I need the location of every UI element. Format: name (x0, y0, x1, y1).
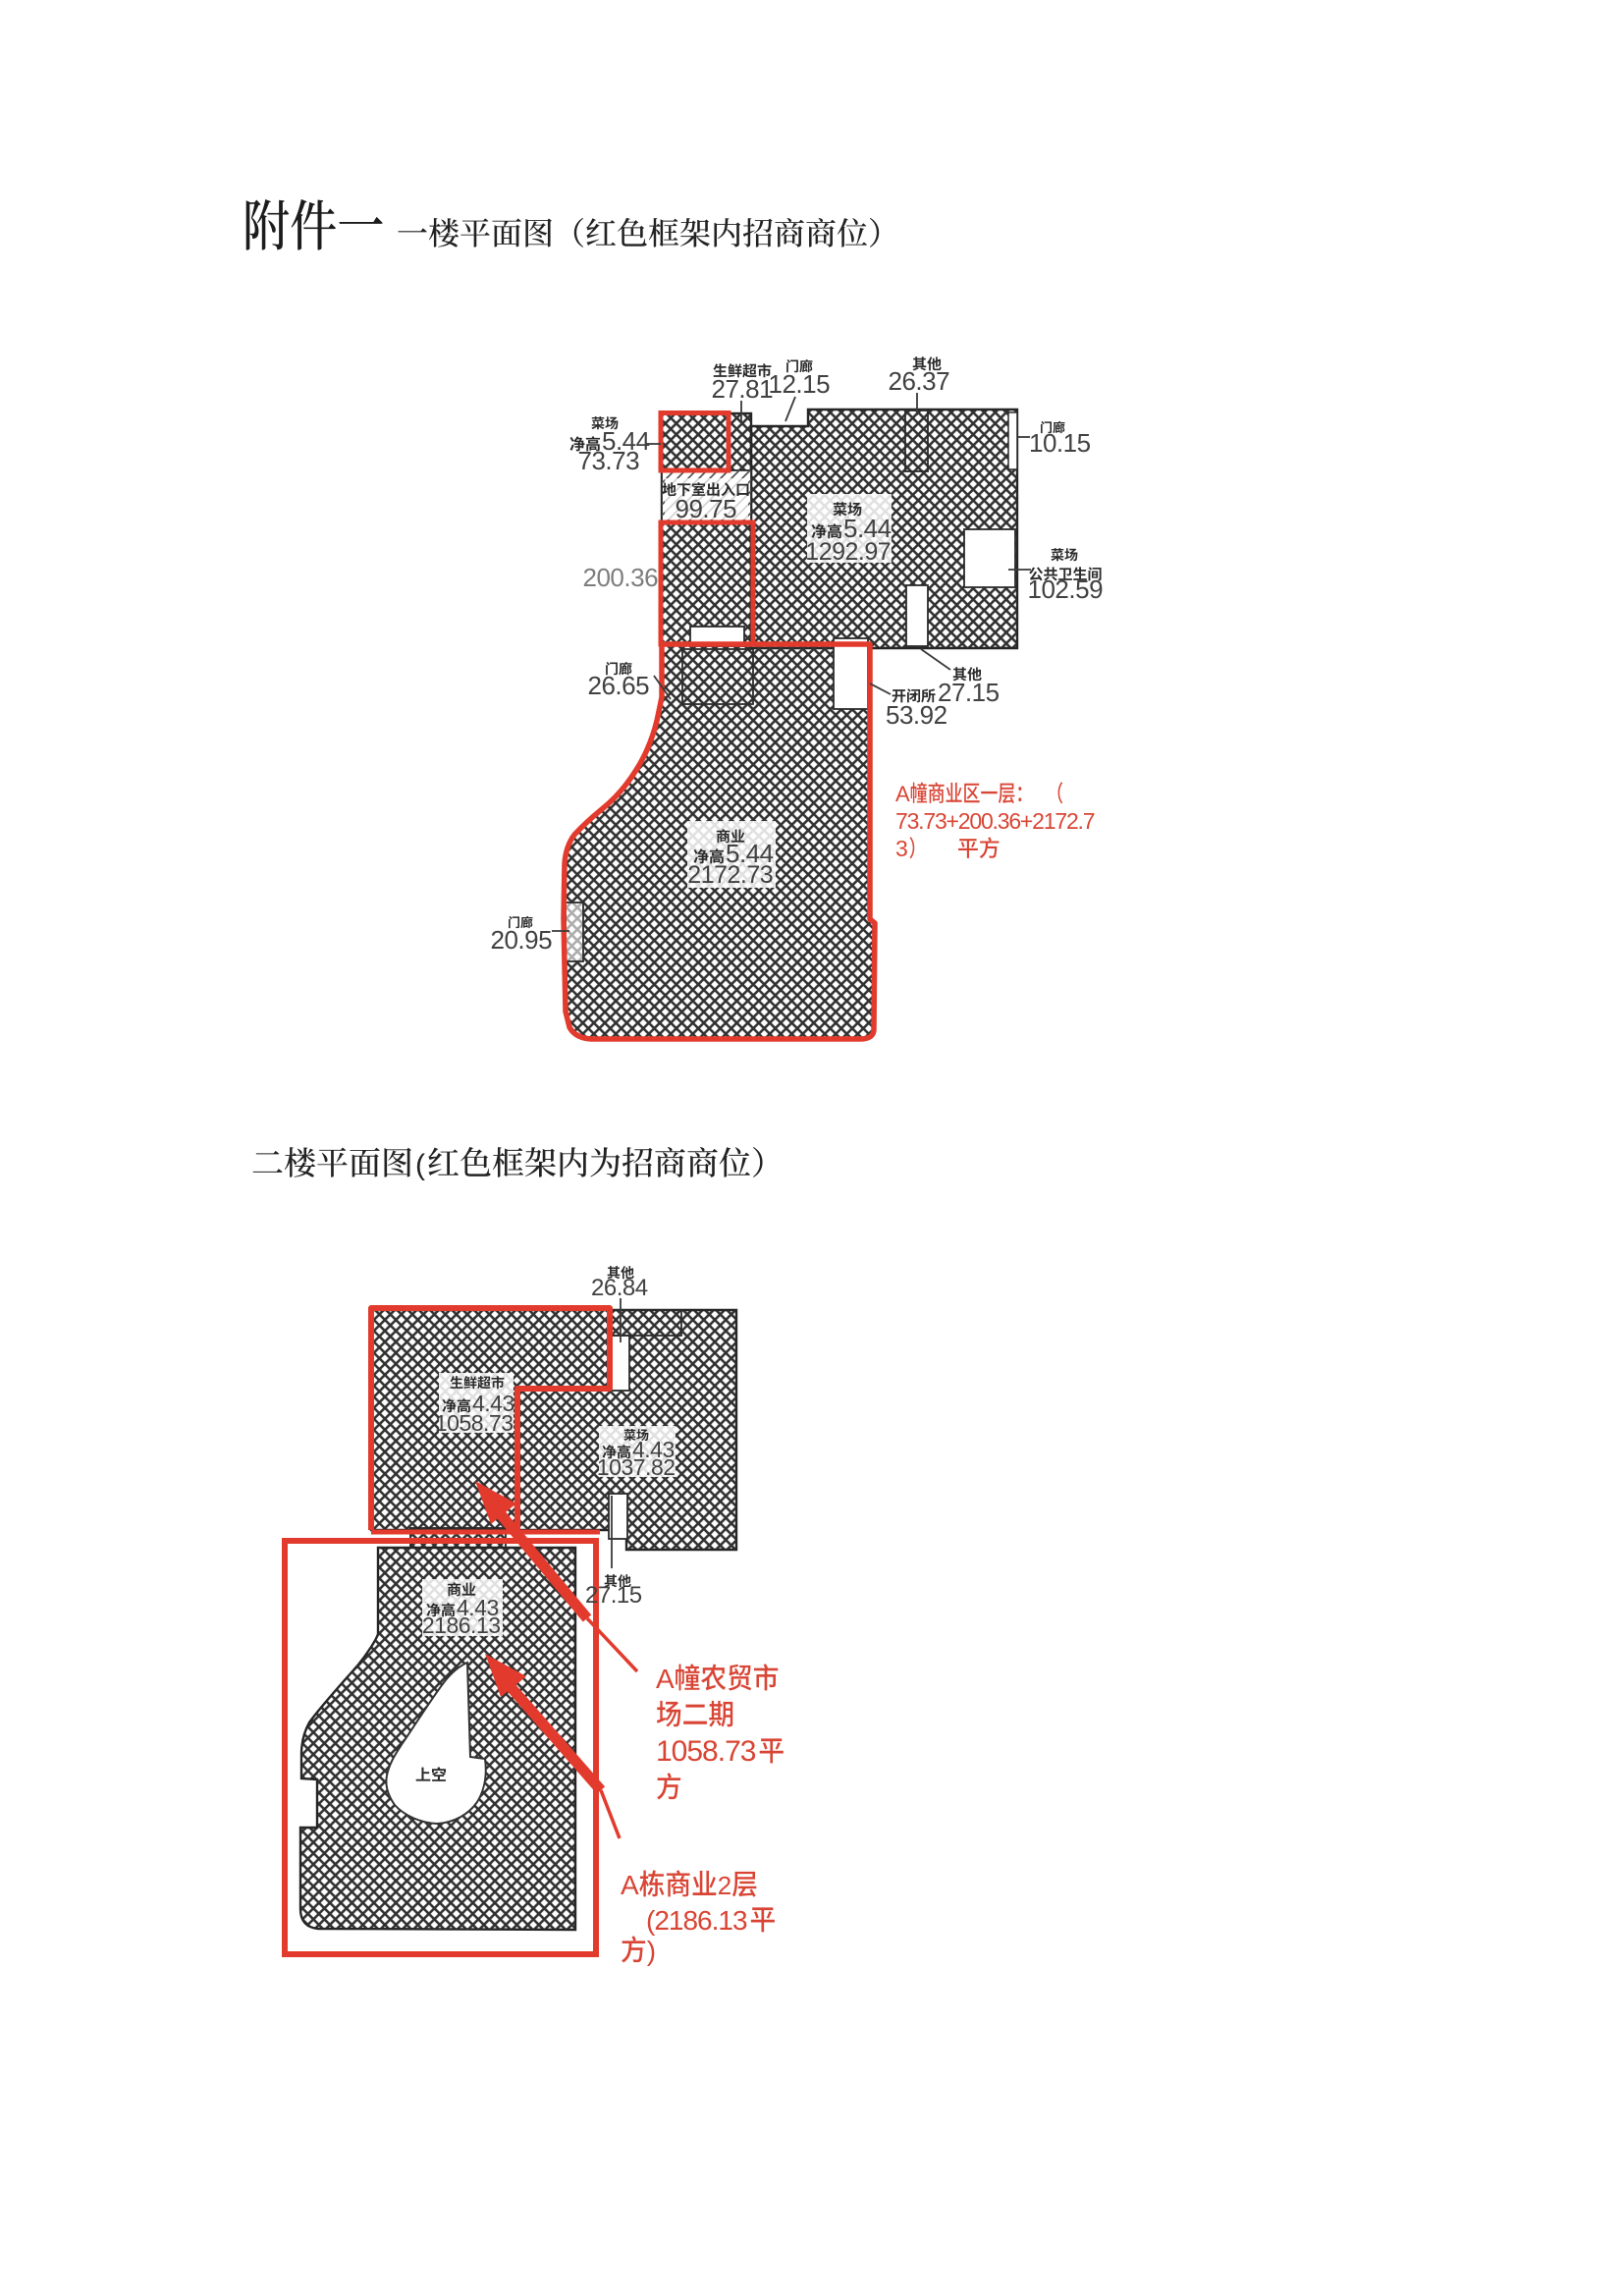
svg-text:102.59: 102.59 (1028, 574, 1104, 604)
svg-text:(2186.13: (2186.13 (646, 1905, 747, 1936)
svg-text:2172.73: 2172.73 (687, 861, 773, 889)
svg-text:1058.73: 1058.73 (435, 1410, 514, 1436)
svg-text:99.75: 99.75 (676, 494, 737, 523)
svg-text:26.37: 26.37 (889, 366, 950, 396)
svg-text:2: 2 (718, 1871, 731, 1900)
svg-text:A: A (895, 782, 910, 806)
svg-text:): ) (647, 1936, 656, 1966)
svg-text:12.15: 12.15 (769, 369, 831, 399)
svg-text:A: A (656, 1664, 675, 1694)
svg-text:2186.13: 2186.13 (422, 1613, 501, 1638)
svg-text:27.81: 27.81 (712, 374, 774, 404)
svg-text:20.95: 20.95 (491, 925, 553, 955)
svg-text:10.15: 10.15 (1029, 428, 1091, 458)
svg-text:1058.73: 1058.73 (656, 1735, 756, 1768)
svg-text:A: A (621, 1870, 639, 1900)
svg-text:3: 3 (895, 836, 908, 861)
svg-text:26.84: 26.84 (591, 1275, 648, 1301)
svg-text:73.73: 73.73 (578, 446, 640, 475)
svg-text:53.92: 53.92 (886, 700, 947, 730)
svg-text:(: ( (415, 1149, 425, 1181)
svg-text:1037.82: 1037.82 (597, 1454, 676, 1480)
svg-text:73.73+200.36+2172.7: 73.73+200.36+2172.7 (895, 808, 1095, 834)
svg-text:200.36: 200.36 (583, 563, 659, 592)
svg-text:26.65: 26.65 (588, 671, 650, 700)
svg-text:27.15: 27.15 (585, 1582, 642, 1609)
svg-text:1292.97: 1292.97 (805, 538, 891, 566)
